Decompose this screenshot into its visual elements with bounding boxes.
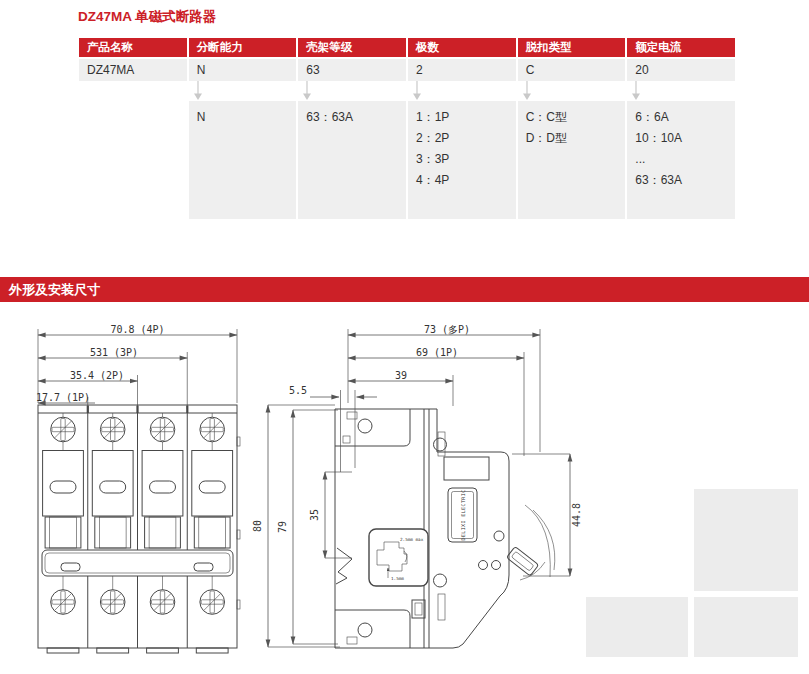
dim-label-80: 80 <box>252 520 263 532</box>
toggle-tie-bar <box>42 550 233 576</box>
front-view-drawing: 70.8 (4P) 531 (3P) 35.4 (2P) 17.7 (1P) <box>36 324 240 654</box>
dim-label-2p: 35.4 (2P) <box>70 370 124 381</box>
placeholder-block <box>694 489 798 591</box>
dim-label-4p: 70.8 (4P) <box>110 324 164 335</box>
placeholder-block <box>586 597 688 657</box>
clip-note-min: 1.5mm <box>391 576 404 581</box>
dim-label-1p: 17.7 (1P) <box>36 392 90 403</box>
dim-label-79: 79 <box>277 521 288 533</box>
dim-label-44-8: 44.8 <box>571 503 582 527</box>
brand-label-text: DELIXI ELECTRIC <box>460 489 466 540</box>
dim-label-39: 39 <box>395 370 407 381</box>
din-clip-detail-box: 2.5mm max 1.5mm <box>369 529 428 586</box>
datasheet-page: DZ47MA 单磁式断路器 产品名称 分断能力 壳架等级 极数 脱扣类型 额定电… <box>0 0 809 674</box>
dim-label-depth-1p: 69 (1P) <box>416 347 458 358</box>
dim-label-depth-multi: 73 (多P) <box>424 324 470 335</box>
clip-note-max: 2.5mm max <box>400 537 424 542</box>
side-view-drawing: 73 (多P) 69 (1P) 39 5.5 80 79 35 44.8 <box>252 324 582 649</box>
dimension-drawings: 70.8 (4P) 531 (3P) 35.4 (2P) 17.7 (1P) <box>0 0 809 674</box>
toggle-handle <box>506 505 554 580</box>
dim-label-5-5: 5.5 <box>289 385 307 396</box>
dim-label-35: 35 <box>309 509 320 521</box>
dim-label-3p: 531 (3P) <box>90 347 138 358</box>
brand-label: DELIXI ELECTRIC <box>448 488 477 542</box>
placeholder-block <box>694 597 798 657</box>
